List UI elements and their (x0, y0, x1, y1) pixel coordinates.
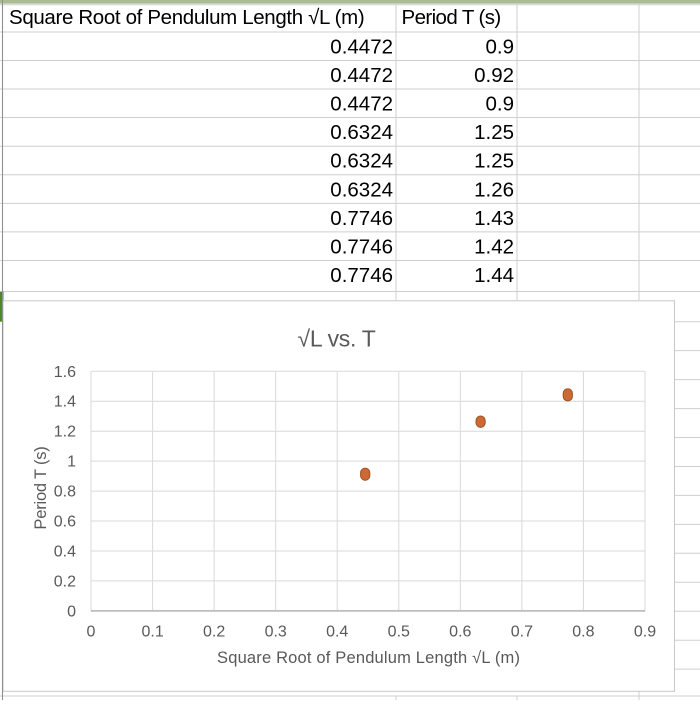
svg-text:1.6: 1.6 (54, 364, 76, 381)
svg-text:Square Root of Pendulum Length: Square Root of Pendulum Length √L (m) (9, 6, 364, 29)
svg-text:0.6324: 0.6324 (330, 178, 393, 201)
svg-text:Square Root of Pendulum Length: Square Root of Pendulum Length √L (m) (217, 649, 520, 667)
svg-text:1.2: 1.2 (54, 424, 76, 441)
svg-text:Period T (s): Period T (s) (32, 446, 50, 529)
svg-text:1.25: 1.25 (474, 150, 514, 173)
svg-text:1.25: 1.25 (474, 121, 514, 144)
svg-text:0.8: 0.8 (54, 484, 76, 501)
svg-text:1.43: 1.43 (474, 207, 514, 230)
svg-text:0.9: 0.9 (486, 35, 515, 58)
svg-text:1: 1 (67, 454, 76, 471)
svg-text:0.6324: 0.6324 (330, 121, 393, 144)
svg-text:0.4472: 0.4472 (330, 35, 393, 58)
svg-text:0.6: 0.6 (449, 624, 471, 641)
svg-text:0.3: 0.3 (265, 624, 287, 641)
svg-text:0.8: 0.8 (572, 624, 594, 641)
svg-text:1.42: 1.42 (474, 235, 514, 258)
svg-text:0.2: 0.2 (203, 624, 225, 641)
svg-text:0.9: 0.9 (486, 92, 515, 115)
svg-text:0.7746: 0.7746 (330, 264, 393, 287)
svg-text:0.2: 0.2 (54, 573, 76, 590)
svg-text:0.7746: 0.7746 (330, 207, 393, 230)
svg-text:√L vs. T: √L vs. T (298, 326, 376, 352)
svg-text:0.4472: 0.4472 (330, 64, 393, 87)
svg-text:0.7: 0.7 (511, 624, 533, 641)
svg-text:1.26: 1.26 (474, 178, 514, 201)
svg-text:1.4: 1.4 (54, 394, 76, 411)
svg-text:0: 0 (87, 624, 96, 641)
svg-text:1.44: 1.44 (474, 264, 514, 287)
svg-text:0.4: 0.4 (326, 624, 348, 641)
svg-text:0.4: 0.4 (54, 544, 76, 561)
svg-text:Period T (s): Period T (s) (402, 6, 501, 29)
svg-text:0.5: 0.5 (388, 624, 410, 641)
svg-text:0: 0 (67, 603, 76, 620)
svg-text:0.92: 0.92 (474, 64, 514, 87)
svg-text:0.6: 0.6 (54, 514, 76, 531)
svg-text:0.1: 0.1 (141, 624, 163, 641)
svg-text:0.6324: 0.6324 (330, 150, 393, 173)
svg-text:0.7746: 0.7746 (330, 235, 393, 258)
svg-text:0.9: 0.9 (634, 624, 656, 641)
svg-text:0.4472: 0.4472 (330, 92, 393, 115)
